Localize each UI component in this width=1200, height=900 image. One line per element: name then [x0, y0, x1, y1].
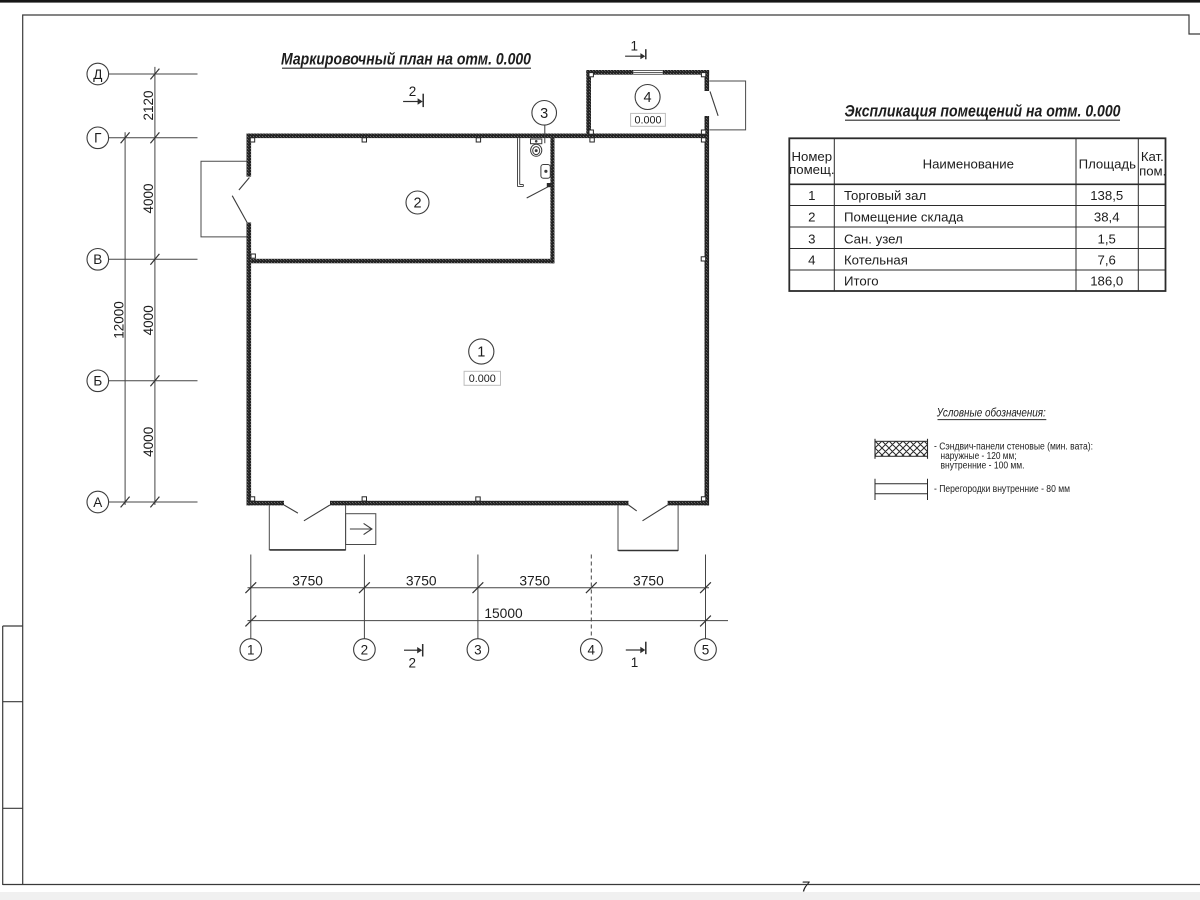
- svg-text:А: А: [93, 495, 102, 510]
- svg-text:3: 3: [808, 232, 815, 247]
- svg-text:1: 1: [631, 655, 639, 670]
- svg-text:7,6: 7,6: [1098, 253, 1116, 268]
- svg-text:1: 1: [477, 345, 485, 361]
- svg-text:Площадь: Площадь: [1079, 156, 1137, 171]
- svg-text:186,0: 186,0: [1090, 274, 1123, 289]
- svg-text:Б: Б: [93, 374, 102, 389]
- svg-text:Маркировочный план на отм. 0.0: Маркировочный план на отм. 0.000: [281, 51, 531, 69]
- svg-text:2: 2: [409, 84, 417, 99]
- svg-text:0.000: 0.000: [469, 373, 496, 385]
- svg-text:4: 4: [644, 90, 652, 106]
- svg-text:1: 1: [808, 188, 815, 203]
- svg-text:Экспликация помещений на отм.: Экспликация помещений на отм. 0.000: [845, 103, 1121, 121]
- svg-text:2: 2: [409, 656, 417, 671]
- svg-text:Д: Д: [93, 67, 102, 82]
- svg-text:2120: 2120: [141, 90, 156, 120]
- svg-text:3750: 3750: [406, 574, 437, 589]
- svg-text:138,5: 138,5: [1090, 188, 1123, 203]
- svg-text:Условные обозначения:: Условные обозначения:: [936, 406, 1046, 420]
- svg-text:1: 1: [630, 39, 638, 54]
- svg-text:Г: Г: [94, 131, 102, 146]
- svg-text:Сан. узел: Сан. узел: [844, 232, 903, 247]
- svg-text:2: 2: [413, 196, 421, 212]
- svg-text:4: 4: [808, 253, 815, 268]
- svg-text:3: 3: [540, 106, 548, 122]
- svg-text:Кат.: Кат.: [1141, 149, 1164, 164]
- svg-text:Итого: Итого: [844, 274, 879, 289]
- svg-text:Торговый зал: Торговый зал: [844, 188, 926, 203]
- svg-text:12000: 12000: [111, 301, 126, 339]
- svg-text:3750: 3750: [292, 574, 323, 589]
- svg-text:внутренние - 100 мм.: внутренние - 100 мм.: [941, 461, 1025, 472]
- svg-text:Котельная: Котельная: [844, 253, 908, 268]
- svg-text:3: 3: [474, 642, 482, 657]
- svg-text:2: 2: [361, 642, 369, 657]
- svg-text:2: 2: [808, 210, 815, 225]
- svg-text:3750: 3750: [633, 574, 664, 589]
- svg-text:5: 5: [702, 642, 710, 657]
- svg-text:- Перегородки внутренние - 80: - Перегородки внутренние - 80 мм: [934, 484, 1070, 495]
- svg-text:Помещение склада: Помещение склада: [844, 210, 964, 225]
- svg-text:4: 4: [588, 642, 596, 657]
- svg-text:4000: 4000: [141, 427, 156, 457]
- svg-text:15000: 15000: [484, 606, 523, 621]
- svg-text:4000: 4000: [141, 305, 156, 335]
- svg-text:В: В: [93, 252, 102, 267]
- svg-text:3750: 3750: [519, 574, 550, 589]
- svg-text:пом.: пом.: [1139, 164, 1166, 179]
- svg-text:0.000: 0.000: [634, 115, 661, 127]
- svg-text:1: 1: [247, 642, 255, 657]
- svg-text:Наименование: Наименование: [923, 156, 1014, 171]
- svg-text:4000: 4000: [141, 183, 156, 213]
- svg-text:38,4: 38,4: [1094, 210, 1120, 225]
- svg-text:помещ.: помещ.: [789, 162, 834, 177]
- svg-text:1,5: 1,5: [1098, 232, 1116, 247]
- svg-text:7: 7: [801, 879, 810, 896]
